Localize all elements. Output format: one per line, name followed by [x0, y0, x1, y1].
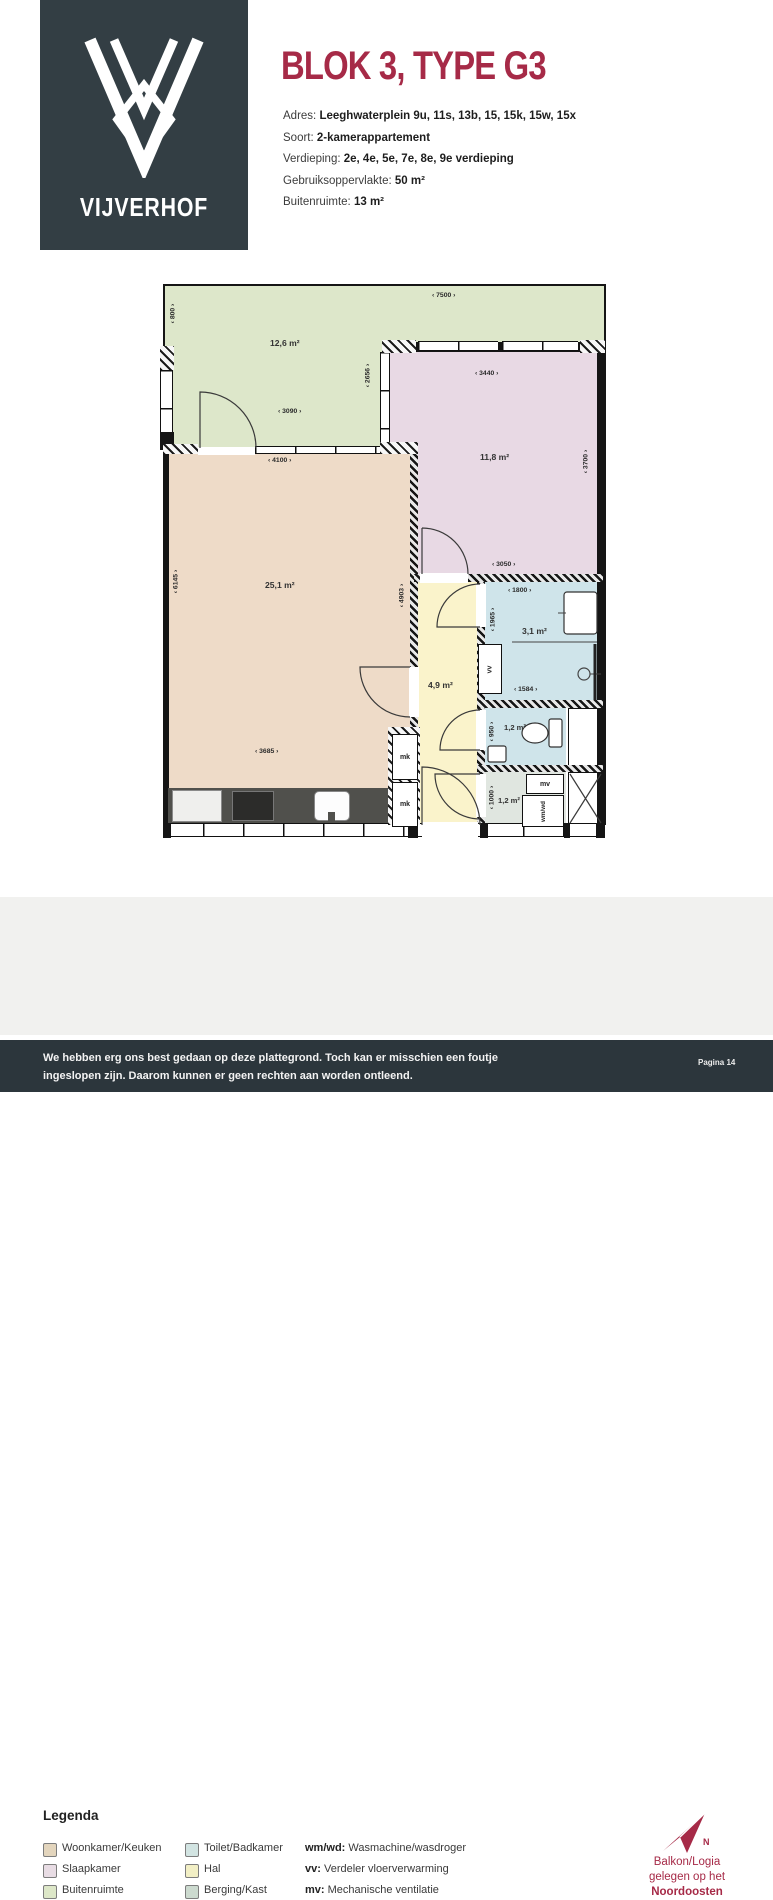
legend-abbreviation: vv: Verdeler vloerverwarming	[305, 1863, 449, 1875]
dim-label: ‹ 1584 ›	[514, 686, 537, 693]
dim-label: ‹ 1800 ›	[508, 587, 531, 594]
legend-label: Buitenruimte	[62, 1884, 124, 1896]
fixtures-layer	[160, 282, 609, 838]
compass-northeast-icon: N	[655, 1809, 715, 1855]
legend-label: Woonkamer/Keuken	[62, 1842, 161, 1854]
apartment-details: Adres: Leeghwaterplein 9u, 11s, 13b, 15,…	[283, 106, 576, 214]
vijverhof-logo-icon	[68, 28, 220, 178]
dim-label: ‹ 4903 ›	[399, 576, 406, 616]
dim-label: ‹ 800 ›	[170, 294, 177, 334]
dim-label: ‹ 4100 ›	[268, 457, 291, 464]
dim-label: ‹ 3090 ›	[278, 408, 301, 415]
area-label-bathroom: 3,1 m²	[522, 626, 547, 636]
dim-label: ‹ 6145 ›	[173, 562, 180, 602]
floorplan: mk mk vv mv wm/wd 12,6 m² 11,	[160, 282, 609, 838]
legend-abbreviation: mv: Mechanische ventilatie	[305, 1884, 439, 1896]
legend-label: Hal	[204, 1863, 221, 1875]
dim-label: ‹ 3700 ›	[583, 442, 590, 482]
detail-row: Verdieping: 2e, 4e, 5e, 7e, 8e, 9e verdi…	[283, 149, 576, 171]
footer-disclaimer: We hebben erg ons best gedaan op deze pl…	[43, 1049, 498, 1085]
area-label-hall: 4,9 m²	[428, 680, 453, 690]
legend-label: Toilet/Badkamer	[204, 1842, 283, 1854]
legend-title: Legenda	[43, 1808, 99, 1823]
legend-band: Legenda Woonkamer/Keuken Slaapkamer Buit…	[0, 897, 773, 1035]
dim-label: ‹ 1000 ›	[489, 778, 496, 818]
compass-caption: Balkon/Logia gelegen op het Noordoosten	[612, 1855, 762, 1900]
legend-abbreviation: wm/wd: Wasmachine/wasdroger	[305, 1842, 466, 1854]
area-label-bedroom: 11,8 m²	[480, 452, 509, 462]
legend-label: Berging/Kast	[204, 1884, 267, 1896]
logo-wordmark: VIJVERHOF	[59, 192, 230, 223]
page-title: BLOK 3, TYPE G3	[281, 44, 546, 89]
detail-row: Adres: Leeghwaterplein 9u, 11s, 13b, 15,…	[283, 106, 576, 128]
legend-chip	[185, 1885, 199, 1899]
detail-row: Buitenruimte: 13 m²	[283, 192, 576, 214]
svg-text:N: N	[703, 1837, 710, 1847]
detail-row: Gebruiksoppervlakte: 50 m²	[283, 171, 576, 193]
area-label-balcony: 12,6 m²	[270, 338, 300, 348]
dim-label: ‹ 3440 ›	[475, 370, 498, 377]
dim-label: ‹ 1965 ›	[490, 600, 497, 640]
area-label-living: 25,1 m²	[265, 580, 295, 590]
legend-label: Slaapkamer	[62, 1863, 121, 1875]
legend-chip	[43, 1864, 57, 1878]
dim-label: ‹ 2656 ›	[365, 356, 372, 396]
dim-label: ‹ 3685 ›	[255, 748, 278, 755]
legend-chip	[185, 1843, 199, 1857]
legend-chip	[43, 1885, 57, 1899]
dim-label: ‹ 7500 ›	[432, 292, 455, 299]
area-label-toilet: 1,2 m²	[504, 723, 526, 732]
legend-chip	[185, 1864, 199, 1878]
page-number: Pagina 14	[698, 1058, 735, 1067]
detail-row: Soort: 2-kamerappartement	[283, 128, 576, 150]
dim-label: ‹ 3050 ›	[492, 561, 515, 568]
dim-label: ‹ 950 ›	[489, 712, 496, 752]
legend-chip	[43, 1843, 57, 1857]
area-label-storage: 1,2 m²	[498, 796, 520, 805]
logo-box: VIJVERHOF	[40, 0, 248, 250]
